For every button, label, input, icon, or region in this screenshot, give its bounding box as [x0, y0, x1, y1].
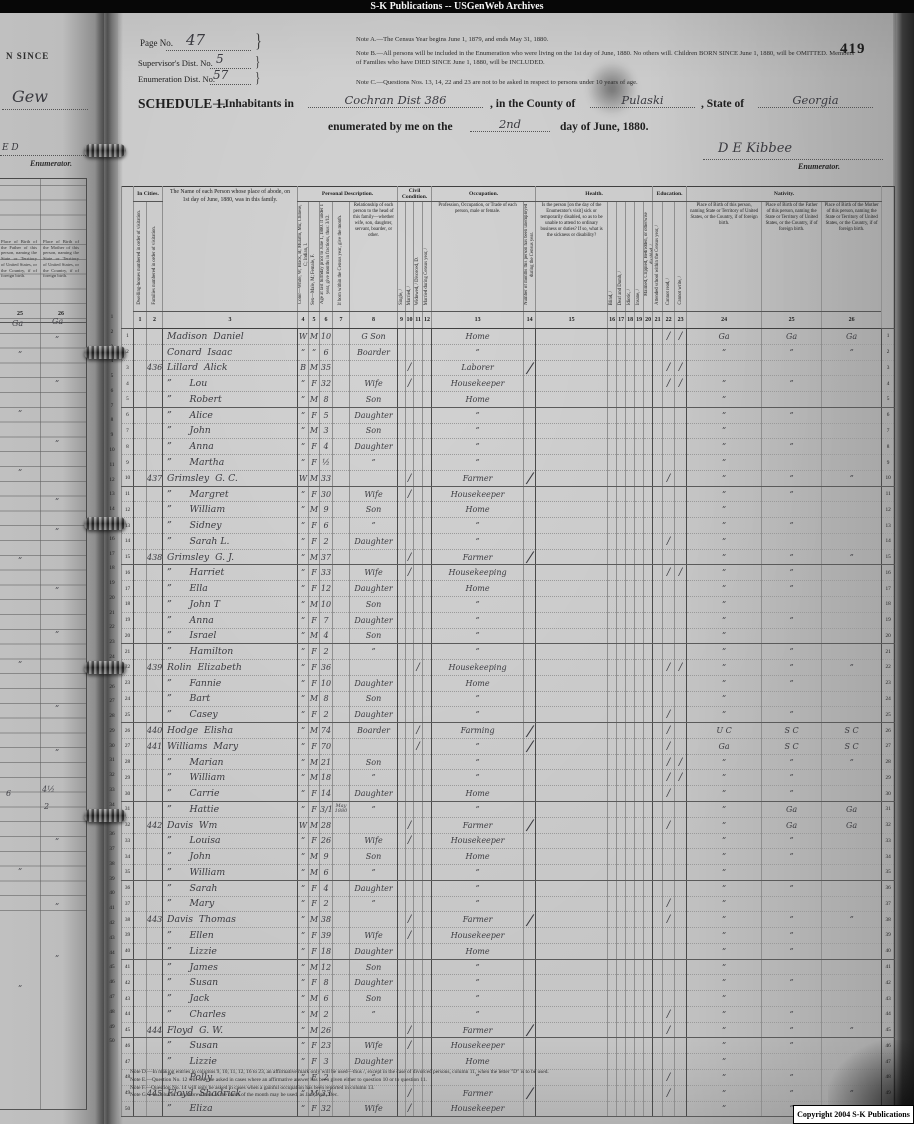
entry-cell	[536, 770, 608, 786]
entry-cell	[653, 675, 663, 691]
table-row: 20” Israel”M4Son””20	[122, 628, 895, 644]
entry-cell: 3	[320, 1054, 333, 1070]
entry-cell	[675, 738, 687, 754]
entry-cell: 8	[320, 975, 333, 991]
entry-cell	[333, 533, 350, 549]
entry-cell	[626, 470, 635, 486]
entry-cell	[644, 959, 653, 975]
entry-cell	[147, 392, 163, 408]
entry-cell	[626, 880, 635, 896]
line-number-cell: 38	[122, 912, 134, 928]
entry-cell	[398, 849, 406, 865]
entry-cell	[414, 1054, 423, 1070]
prev-page-entry: ”	[55, 902, 59, 911]
entry-cell: ” James	[163, 959, 298, 975]
entry-cell: Home	[432, 502, 524, 518]
entry-cell: ”	[762, 470, 822, 486]
table-row: 7” John”M3Son””7	[122, 423, 895, 439]
entry-cell	[675, 975, 687, 991]
entry-cell	[675, 801, 687, 817]
entry-cell	[406, 959, 414, 975]
entry-cell	[653, 644, 663, 660]
entry-cell: Son	[350, 754, 398, 770]
entry-cell	[406, 533, 414, 549]
entry-cell	[663, 975, 675, 991]
entry-cell	[675, 470, 687, 486]
entry-cell	[423, 329, 432, 345]
schedule-lead: —Inhabitants in	[213, 98, 294, 110]
entry-cell	[644, 991, 653, 1007]
entry-cell	[414, 439, 423, 455]
entry-cell: ”	[762, 770, 822, 786]
entry-cell: F	[309, 439, 320, 455]
entry-cell	[398, 896, 406, 912]
entry-cell: ”	[298, 801, 309, 817]
column-number: 4	[298, 312, 309, 329]
entry-cell	[147, 691, 163, 707]
entry-cell	[134, 770, 147, 786]
entry-cell: ” Margret	[163, 486, 298, 502]
entry-cell	[644, 612, 653, 628]
entry-cell	[822, 849, 882, 865]
entry-cell	[414, 407, 423, 423]
prev-page-entry: Ga	[12, 319, 23, 328]
entry-cell: ” Harriet	[163, 565, 298, 581]
group-nativity: Nativity.	[687, 187, 882, 202]
entry-cell	[524, 392, 536, 408]
entry-cell	[398, 880, 406, 896]
entry-cell: ”	[687, 675, 762, 691]
entry-cell: ”	[298, 959, 309, 975]
entry-cell	[608, 1101, 617, 1117]
entry-cell: 12	[320, 959, 333, 975]
entry-cell	[398, 991, 406, 1007]
entry-cell	[524, 439, 536, 455]
entry-cell: ”	[298, 518, 309, 534]
entry-cell	[423, 691, 432, 707]
entry-cell	[423, 423, 432, 439]
supervisor-dist-value: 5	[216, 52, 224, 66]
entry-cell	[423, 959, 432, 975]
entry-cell: ”	[687, 959, 762, 975]
entry-cell	[822, 597, 882, 613]
entry-cell: ”	[687, 1022, 762, 1038]
entry-cell	[423, 486, 432, 502]
table-row: 27441Williams Mary”F70/”//GaS CS C27	[122, 738, 895, 754]
entry-cell	[536, 392, 608, 408]
entry-cell	[134, 738, 147, 754]
entry-cell	[626, 392, 635, 408]
entry-cell	[644, 691, 653, 707]
entry-cell: ”	[350, 865, 398, 881]
entry-cell: 39	[320, 928, 333, 944]
entry-cell	[414, 943, 423, 959]
entry-cell: /	[406, 1101, 414, 1117]
entry-cell: /	[663, 533, 675, 549]
entry-cell: ”	[762, 786, 822, 802]
line-number-cell: 14	[122, 533, 134, 549]
entry-cell	[414, 896, 423, 912]
entry-cell	[398, 817, 406, 833]
entry-cell	[423, 754, 432, 770]
entry-cell	[644, 770, 653, 786]
entry-cell: ”	[687, 707, 762, 723]
line-number-cell: 4	[122, 376, 134, 392]
entry-cell	[333, 786, 350, 802]
entry-cell	[608, 691, 617, 707]
entry-cell	[644, 754, 653, 770]
line-number-cell: 28	[122, 754, 134, 770]
entry-cell	[134, 896, 147, 912]
entry-cell	[653, 928, 663, 944]
column-number: 26	[822, 312, 882, 329]
entry-cell	[663, 943, 675, 959]
entry-cell	[398, 786, 406, 802]
entry-cell	[147, 455, 163, 471]
entry-cell: ”	[298, 928, 309, 944]
column-number: 18	[626, 312, 635, 329]
enumerator-signature: D E Kibbee	[718, 141, 792, 156]
entry-cell: ”	[687, 786, 762, 802]
entry-cell	[414, 329, 423, 345]
entry-cell	[536, 612, 608, 628]
entry-cell: ”	[432, 407, 524, 423]
entry-cell: ”	[298, 1101, 309, 1117]
entry-cell	[608, 376, 617, 392]
entry-cell	[635, 502, 644, 518]
entry-cell: ”	[350, 455, 398, 471]
entry-cell: /	[523, 738, 537, 755]
entry-cell	[423, 723, 432, 739]
entry-cell	[635, 486, 644, 502]
entry-cell: ” John	[163, 423, 298, 439]
entry-cell: ”	[298, 880, 309, 896]
entry-cell	[653, 849, 663, 865]
entry-cell	[626, 723, 635, 739]
entry-cell: Home	[432, 849, 524, 865]
binding-post	[84, 809, 126, 822]
entry-cell	[635, 470, 644, 486]
entry-cell	[333, 817, 350, 833]
entry-cell	[663, 628, 675, 644]
entry-cell: F	[309, 455, 320, 471]
col-months-unemployed-header: Number of months this person has been un…	[524, 202, 536, 312]
entry-cell: ” Hamilton	[163, 644, 298, 660]
entry-cell	[675, 1006, 687, 1022]
entry-cell	[762, 991, 822, 1007]
entry-cell	[524, 518, 536, 534]
entry-cell	[635, 675, 644, 691]
entry-cell	[626, 407, 635, 423]
entry-cell: ”	[762, 1038, 822, 1054]
entry-cell	[644, 502, 653, 518]
entry-cell: F	[309, 581, 320, 597]
entry-cell: F	[309, 486, 320, 502]
entry-cell: ”	[762, 518, 822, 534]
entry-cell	[644, 376, 653, 392]
entry-cell: /	[675, 329, 687, 345]
entry-cell: Wife	[350, 1038, 398, 1054]
entry-cell	[524, 1038, 536, 1054]
entry-cell	[333, 565, 350, 581]
entry-cell	[536, 407, 608, 423]
entry-cell	[398, 865, 406, 881]
entry-cell	[663, 991, 675, 1007]
entry-cell	[762, 628, 822, 644]
column-number: 22	[663, 312, 675, 329]
entry-cell: ”	[432, 754, 524, 770]
entry-cell	[147, 865, 163, 881]
entry-cell: ”	[822, 344, 882, 360]
entry-cell: ”	[432, 644, 524, 660]
entry-cell: ” Jack	[163, 991, 298, 1007]
entry-cell: Boarder	[350, 344, 398, 360]
entry-cell	[635, 455, 644, 471]
entry-cell: ”	[298, 455, 309, 471]
prev-page-entry: ”	[55, 527, 59, 536]
schedule-footnotes: Note D.—In making entries in columns 9, …	[130, 1069, 850, 1100]
entry-cell	[423, 376, 432, 392]
entry-cell	[147, 407, 163, 423]
entry-cell: 2	[320, 533, 333, 549]
column-number: 14	[524, 312, 536, 329]
entry-cell	[423, 1054, 432, 1070]
prev-page-entry: ”	[55, 379, 59, 388]
line-number-cell: 23	[122, 675, 134, 691]
entry-cell	[675, 549, 687, 565]
entry-cell: Ga	[762, 801, 822, 817]
entry-cell	[350, 817, 398, 833]
entry-cell: S C	[762, 723, 822, 739]
entry-cell	[134, 439, 147, 455]
table-row: 35” William”M6”””35	[122, 865, 895, 881]
line-number-cell: 20	[122, 628, 134, 644]
entry-cell	[333, 723, 350, 739]
entry-cell	[675, 597, 687, 613]
entry-cell: ”	[350, 518, 398, 534]
entry-cell	[423, 707, 432, 723]
entry-cell	[536, 801, 608, 817]
entry-cell: Farming	[432, 723, 524, 739]
entry-cell	[608, 344, 617, 360]
line-number-cell: 17	[122, 581, 134, 597]
entry-cell: ” Lizzie	[163, 1054, 298, 1070]
line-number-cell: 39	[122, 928, 134, 944]
entry-cell	[617, 486, 626, 502]
entry-cell	[644, 581, 653, 597]
entry-cell	[524, 533, 536, 549]
entry-cell: ”	[822, 660, 882, 676]
entry-cell: ”	[432, 518, 524, 534]
entry-cell: ”	[822, 549, 882, 565]
entry-cell	[524, 612, 536, 628]
entry-cell	[398, 597, 406, 613]
entry-cell	[653, 502, 663, 518]
entry-cell	[653, 455, 663, 471]
entry-cell	[147, 833, 163, 849]
enumeration-dist-value: 57	[213, 68, 228, 82]
entry-cell: 7	[320, 612, 333, 628]
entry-cell	[134, 849, 147, 865]
entry-cell	[414, 770, 423, 786]
entry-cell	[675, 786, 687, 802]
entry-cell	[406, 612, 414, 628]
entry-cell	[524, 486, 536, 502]
entry-cell	[644, 1006, 653, 1022]
entry-cell	[822, 565, 882, 581]
table-row: 46” Susan”F23Wife/Housekeeper””46	[122, 1038, 895, 1054]
entry-cell	[134, 660, 147, 676]
entry-cell: 6	[320, 518, 333, 534]
entry-cell	[644, 549, 653, 565]
table-row: 15438Grimsley G. J.”M37/Farmer/”””15	[122, 549, 895, 565]
entry-cell	[608, 329, 617, 345]
entry-cell: ”	[762, 612, 822, 628]
entry-cell	[626, 786, 635, 802]
line-number-cell: 18	[122, 597, 134, 613]
entry-cell	[635, 439, 644, 455]
entry-cell: 9	[320, 502, 333, 518]
entry-cell	[147, 1006, 163, 1022]
entry-cell	[608, 1054, 617, 1070]
table-row: 9” Martha”F½”””9	[122, 455, 895, 471]
entry-cell	[536, 581, 608, 597]
entry-cell: F	[309, 896, 320, 912]
entry-cell	[414, 817, 423, 833]
entry-cell	[626, 1101, 635, 1117]
entry-cell: ”	[822, 912, 882, 928]
line-number-cell: 30	[122, 786, 134, 802]
entry-cell	[398, 565, 406, 581]
entry-cell: ”	[309, 344, 320, 360]
entry-cell	[635, 344, 644, 360]
entry-cell	[626, 360, 635, 376]
entry-cell: /	[663, 1022, 675, 1038]
entry-cell	[333, 1101, 350, 1117]
entry-cell	[423, 344, 432, 360]
entry-cell: ”	[432, 439, 524, 455]
entry-cell	[617, 1101, 626, 1117]
entry-cell	[147, 486, 163, 502]
entry-cell	[626, 455, 635, 471]
entry-cell	[398, 518, 406, 534]
entry-cell: F	[309, 786, 320, 802]
entry-cell	[333, 896, 350, 912]
entry-cell: ”	[687, 660, 762, 676]
entry-cell	[398, 628, 406, 644]
entry-cell: W	[298, 329, 309, 345]
entry-cell	[626, 959, 635, 975]
entry-cell	[675, 675, 687, 691]
entry-cell	[644, 644, 653, 660]
entry-cell: /	[406, 360, 414, 376]
entry-cell: M	[309, 549, 320, 565]
entry-cell: ” Alice	[163, 407, 298, 423]
entry-cell	[536, 675, 608, 691]
entry-cell: /	[406, 486, 414, 502]
entry-cell: Son	[350, 423, 398, 439]
column-number: 1	[134, 312, 147, 329]
entry-cell	[423, 660, 432, 676]
entry-cell	[524, 660, 536, 676]
entry-cell: ”	[298, 912, 309, 928]
entry-cell	[626, 376, 635, 392]
entry-cell	[635, 329, 644, 345]
prev-page-entry: ”	[55, 335, 59, 344]
prev-enumerator-label: Enumerator.	[30, 159, 72, 168]
entry-cell	[147, 533, 163, 549]
entry-cell: Laborer	[432, 360, 524, 376]
entry-cell: M	[309, 1022, 320, 1038]
entry-cell	[350, 912, 398, 928]
entry-cell: ”	[298, 833, 309, 849]
entry-cell: M	[309, 360, 320, 376]
entry-cell: /	[406, 376, 414, 392]
entry-cell: /	[663, 896, 675, 912]
entry-cell	[134, 833, 147, 849]
entry-cell	[653, 691, 663, 707]
entry-cell	[524, 865, 536, 881]
entry-cell	[626, 1054, 635, 1070]
entry-cell	[398, 612, 406, 628]
entry-cell	[414, 1038, 423, 1054]
entry-cell: ”	[687, 928, 762, 944]
entry-cell	[822, 786, 882, 802]
entry-cell	[134, 1054, 147, 1070]
entry-cell: Daughter	[350, 533, 398, 549]
entry-cell: F	[309, 975, 320, 991]
entry-cell	[635, 723, 644, 739]
prev-page-entry: ”	[55, 704, 59, 713]
entry-cell	[406, 329, 414, 345]
entry-cell	[644, 896, 653, 912]
entry-cell: F	[309, 801, 320, 817]
entry-cell	[423, 912, 432, 928]
entry-cell: ”	[298, 975, 309, 991]
entry-cell: ” Sarah	[163, 880, 298, 896]
entry-cell	[653, 801, 663, 817]
page-stamp-number: 419	[840, 41, 866, 58]
entry-cell: ”	[432, 707, 524, 723]
entry-cell	[147, 565, 163, 581]
entry-cell	[653, 723, 663, 739]
entry-cell	[423, 817, 432, 833]
entry-cell	[333, 928, 350, 944]
entry-cell	[762, 392, 822, 408]
line-number-cell: 34	[122, 849, 134, 865]
column-number: 16	[608, 312, 617, 329]
entry-cell: Daughter	[350, 786, 398, 802]
entry-cell: ”	[687, 849, 762, 865]
column-number: 5	[309, 312, 320, 329]
entry-cell	[423, 1022, 432, 1038]
entry-cell	[134, 565, 147, 581]
entry-cell	[398, 943, 406, 959]
entry-cell	[822, 502, 882, 518]
entry-cell	[675, 833, 687, 849]
entry-cell	[822, 612, 882, 628]
entry-cell	[333, 329, 350, 345]
entry-cell	[414, 865, 423, 881]
entry-cell	[626, 770, 635, 786]
entry-cell	[398, 502, 406, 518]
state-lead: , State of	[701, 98, 744, 110]
entry-cell	[423, 1006, 432, 1022]
entry-cell: 28	[320, 817, 333, 833]
entry-cell	[333, 959, 350, 975]
entry-cell	[406, 975, 414, 991]
entry-cell	[147, 928, 163, 944]
